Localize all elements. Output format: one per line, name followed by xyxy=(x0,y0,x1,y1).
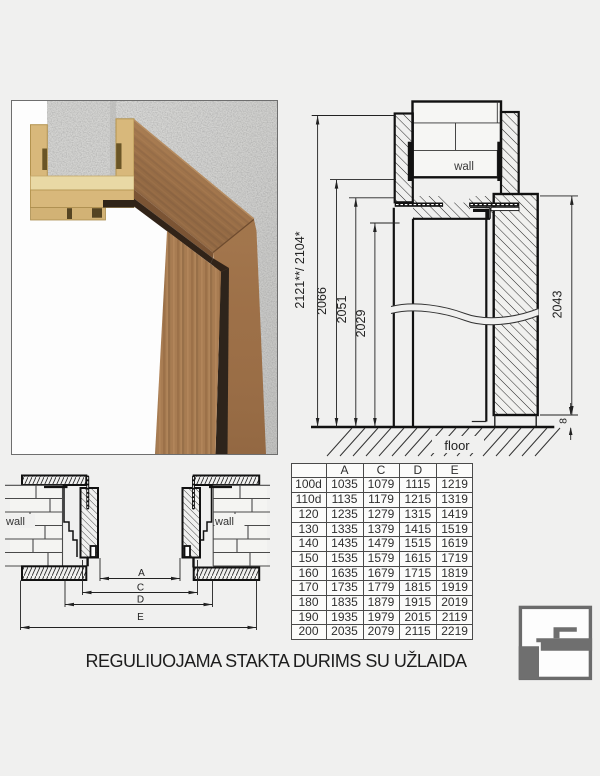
svg-text:C: C xyxy=(137,583,144,594)
svg-text:2121**/ 2104*: 2121**/ 2104* xyxy=(295,231,307,308)
svg-text:A: A xyxy=(138,568,145,579)
svg-text:2043: 2043 xyxy=(551,291,565,319)
svg-text:E: E xyxy=(137,612,144,623)
svg-text:8: 8 xyxy=(558,418,570,424)
svg-text:2066: 2066 xyxy=(315,287,329,315)
svg-text:2051: 2051 xyxy=(335,296,349,324)
svg-text:wall: wall xyxy=(453,161,474,173)
svg-text:D: D xyxy=(137,595,144,606)
svg-text:wall: wall xyxy=(5,516,25,528)
svg-text:floor: floor xyxy=(444,438,470,453)
svg-text:2029: 2029 xyxy=(354,310,368,338)
svg-text:wall: wall xyxy=(214,516,234,528)
